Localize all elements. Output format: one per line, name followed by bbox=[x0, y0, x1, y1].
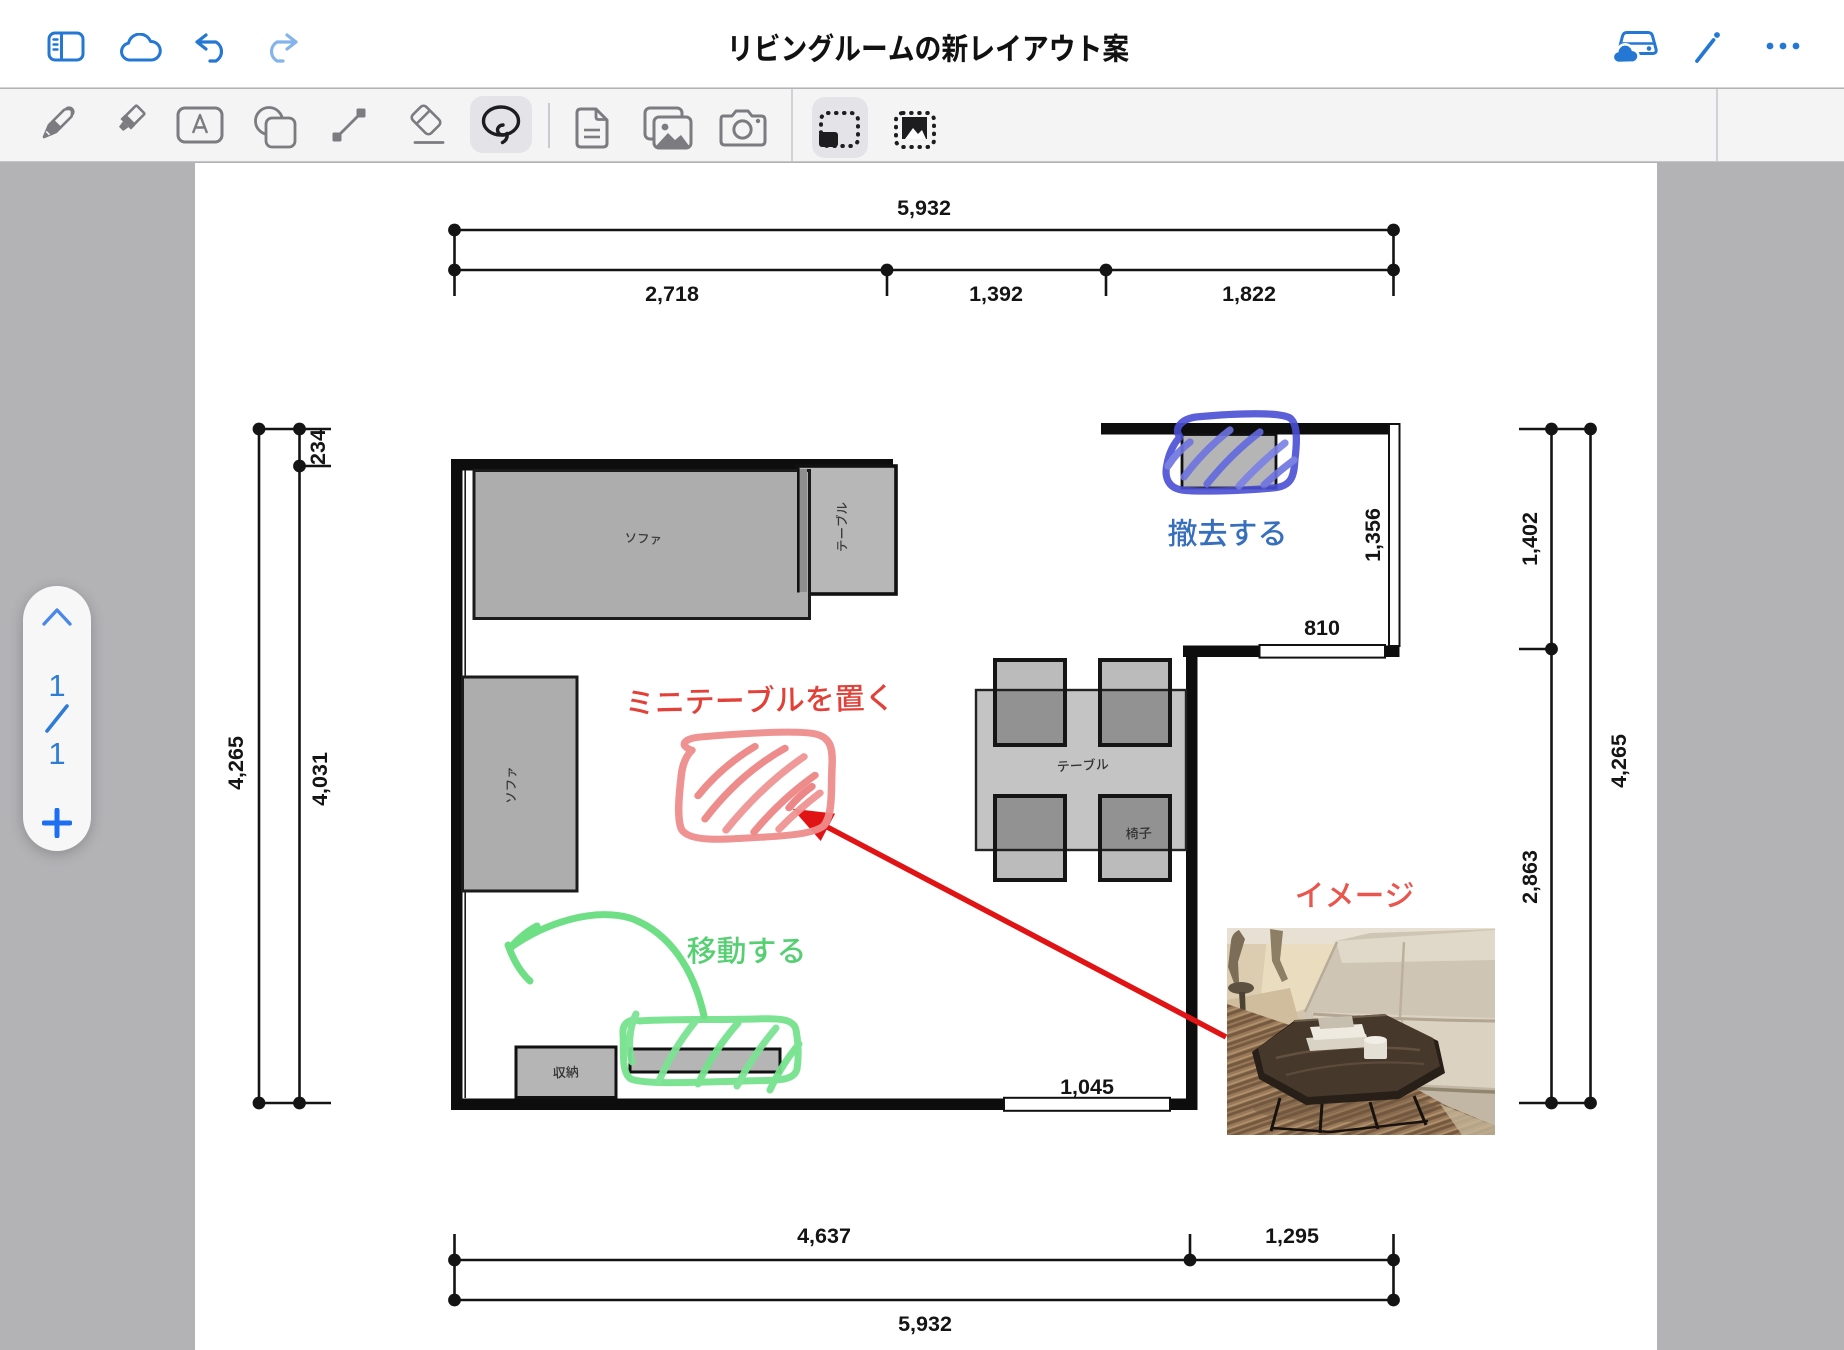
svg-text:1,822: 1,822 bbox=[1222, 282, 1276, 306]
svg-text:4,637: 4,637 bbox=[797, 1224, 851, 1248]
svg-text:4,265: 4,265 bbox=[1607, 734, 1631, 788]
svg-text:2,863: 2,863 bbox=[1518, 850, 1542, 904]
svg-text:234: 234 bbox=[306, 429, 330, 465]
svg-text:1,045: 1,045 bbox=[1060, 1075, 1114, 1099]
svg-text:4,031: 4,031 bbox=[308, 752, 332, 806]
svg-text:1,356: 1,356 bbox=[1361, 508, 1385, 562]
svg-text:4,265: 4,265 bbox=[224, 736, 248, 790]
svg-text:5,932: 5,932 bbox=[898, 1312, 952, 1336]
svg-text:5,932: 5,932 bbox=[897, 196, 951, 220]
svg-text:1,402: 1,402 bbox=[1518, 512, 1542, 566]
svg-text:810: 810 bbox=[1304, 616, 1340, 640]
svg-text:2,718: 2,718 bbox=[645, 282, 699, 306]
svg-text:1,295: 1,295 bbox=[1265, 1224, 1319, 1248]
svg-text:1,392: 1,392 bbox=[969, 282, 1023, 306]
